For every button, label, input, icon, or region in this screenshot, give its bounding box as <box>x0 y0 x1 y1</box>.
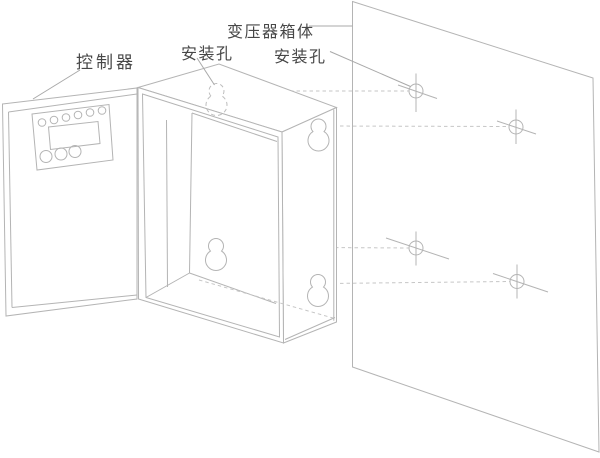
controller-door <box>3 88 138 316</box>
leader-line-controller <box>33 70 80 99</box>
label-transformer-body: 变压器箱体 <box>227 18 315 42</box>
opening-inner-rim <box>143 94 280 337</box>
diagram-stage: 控制器 安装孔 变压器箱体 安装孔 <box>0 0 600 458</box>
transformer-cabinet-panel <box>353 2 600 453</box>
transformer-panel-face <box>353 2 600 453</box>
label-mounting-hole-left: 安装孔 <box>181 40 234 64</box>
door-face <box>3 88 138 316</box>
label-controller: 控制器 <box>76 48 136 73</box>
label-mounting-hole-right: 安装孔 <box>274 43 327 67</box>
controller-enclosure <box>138 64 337 343</box>
